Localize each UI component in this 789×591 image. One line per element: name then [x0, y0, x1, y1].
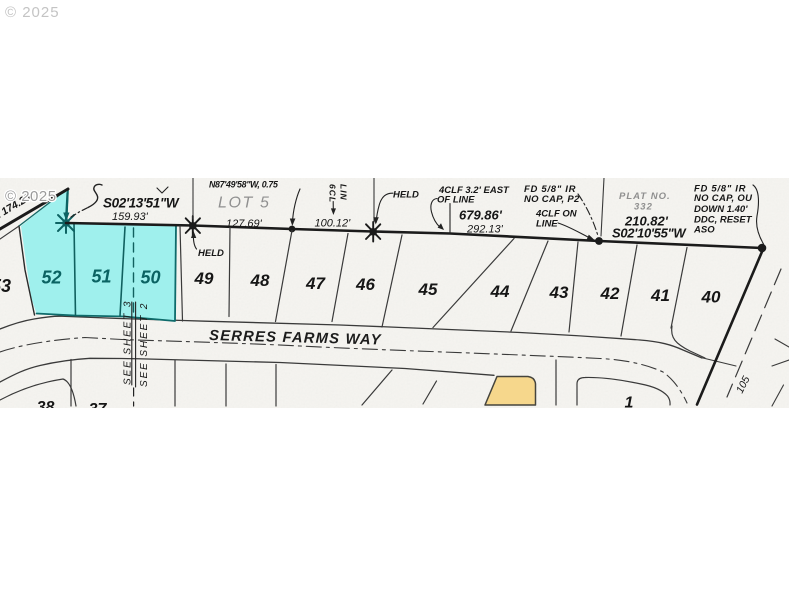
- svg-text:S02'13'51"W: S02'13'51"W: [103, 196, 180, 211]
- svg-text:LIN: LIN: [339, 184, 349, 201]
- svg-text:100.12': 100.12': [315, 218, 352, 230]
- svg-text:53: 53: [0, 276, 11, 296]
- svg-text:PLAT NO.: PLAT NO.: [619, 191, 671, 202]
- svg-text:46: 46: [355, 275, 375, 294]
- svg-text:OF LINE: OF LINE: [437, 195, 475, 206]
- svg-text:679.86': 679.86': [459, 208, 503, 223]
- svg-text:51: 51: [91, 267, 111, 287]
- svg-text:© 2025: © 2025: [5, 188, 57, 205]
- svg-text:41: 41: [650, 286, 670, 305]
- svg-text:50: 50: [140, 268, 160, 288]
- svg-text:NO CAP, P2: NO CAP, P2: [524, 194, 580, 205]
- svg-text:NO CAP, OU: NO CAP, OU: [694, 193, 753, 204]
- svg-text:43: 43: [549, 283, 569, 302]
- svg-text:HELD: HELD: [393, 190, 419, 201]
- svg-text:47: 47: [305, 274, 326, 293]
- svg-text:LOT 5: LOT 5: [218, 195, 270, 212]
- svg-text:48: 48: [250, 271, 270, 290]
- svg-text:292.13': 292.13': [466, 224, 504, 236]
- svg-text:44: 44: [490, 282, 510, 301]
- svg-text:SEE SHEET 3: SEE SHEET 3: [123, 300, 134, 385]
- svg-text:ASO: ASO: [693, 225, 715, 236]
- svg-text:42: 42: [600, 284, 620, 303]
- svg-text:45: 45: [418, 280, 438, 299]
- svg-text:159.93': 159.93': [112, 211, 149, 223]
- svg-text:HELD: HELD: [198, 248, 224, 259]
- svg-text:© 2025: © 2025: [5, 4, 60, 21]
- svg-text:49: 49: [194, 269, 214, 288]
- svg-text:332: 332: [634, 202, 653, 213]
- svg-text:6CL: 6CL: [328, 184, 338, 203]
- svg-text:127.69': 127.69': [226, 218, 263, 230]
- svg-text:40: 40: [701, 288, 721, 307]
- svg-text:LINE: LINE: [536, 219, 558, 230]
- svg-text:N87'49'58"W, 0.75: N87'49'58"W, 0.75: [209, 180, 278, 190]
- svg-text:S02'10'55"W: S02'10'55"W: [612, 226, 687, 241]
- svg-text:52: 52: [41, 268, 61, 288]
- svg-text:SEE SHEET 2: SEE SHEET 2: [139, 302, 150, 387]
- svg-text:DOWN 1.40': DOWN 1.40': [694, 204, 748, 215]
